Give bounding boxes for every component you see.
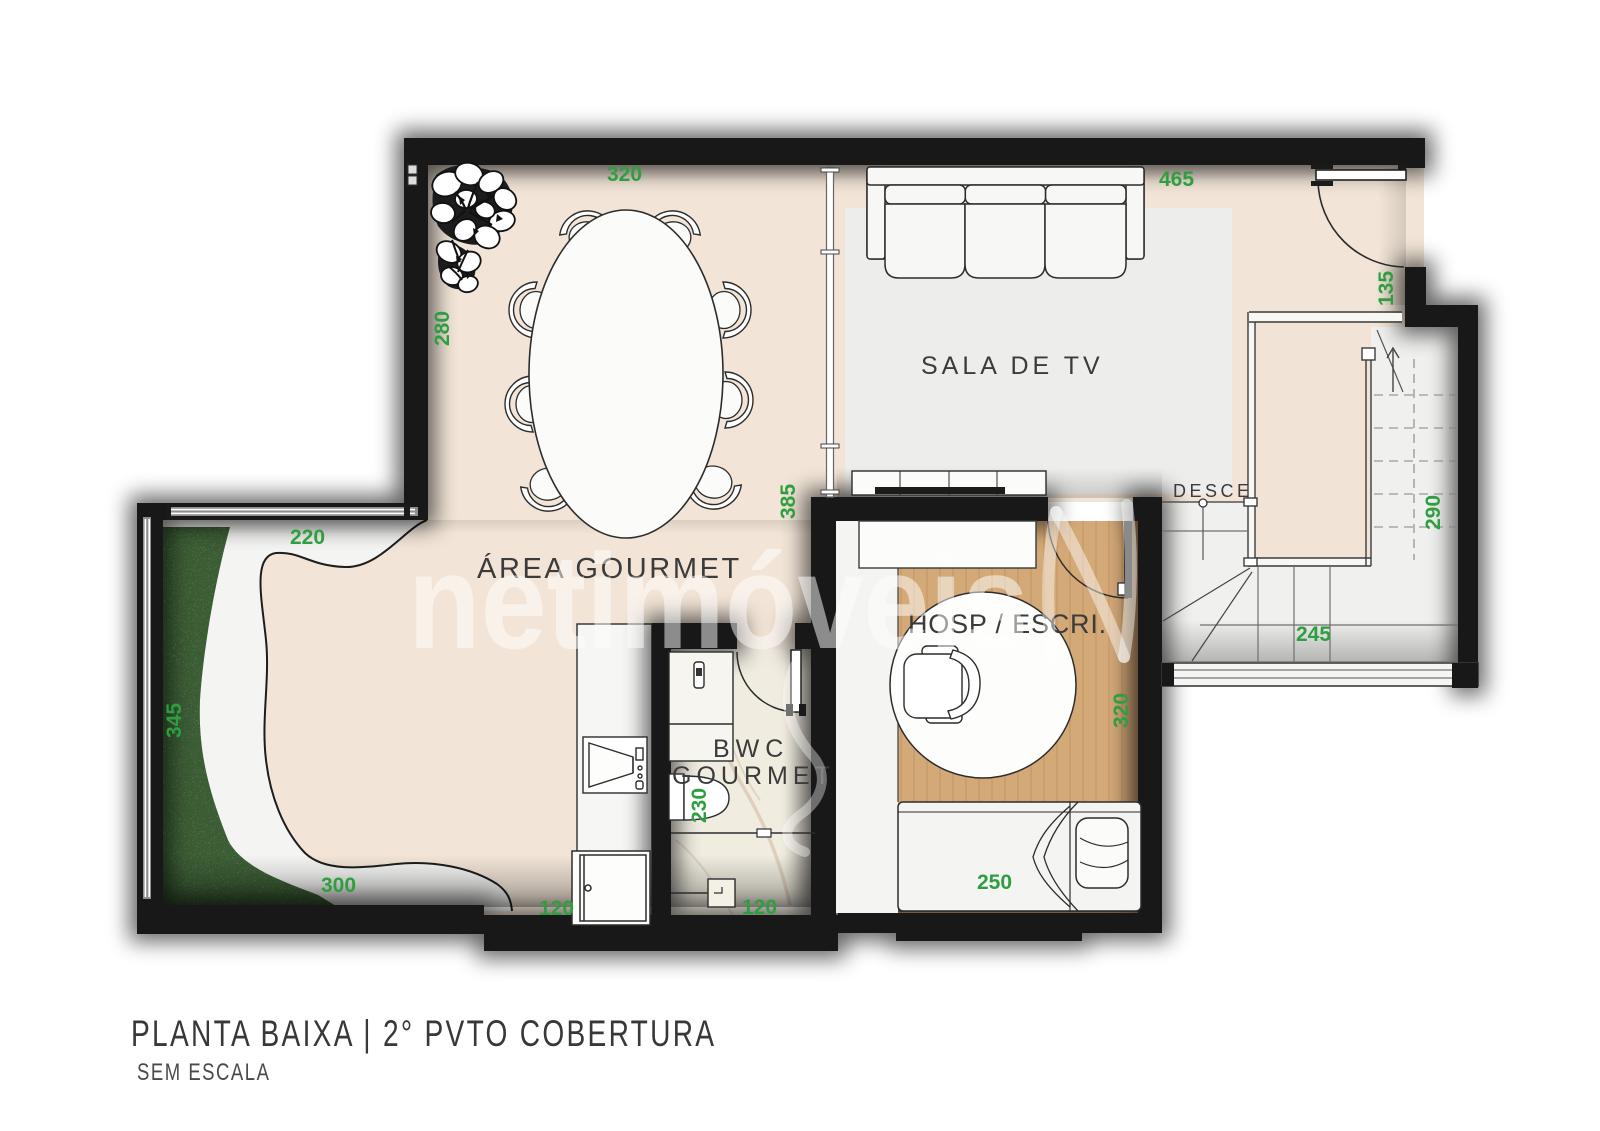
svg-text:PLANTA BAIXA | 2° PVTO COBERTU: PLANTA BAIXA | 2° PVTO COBERTURA [131,1012,716,1054]
svg-text:BWC: BWC [713,735,789,763]
svg-text:300: 300 [321,874,356,897]
svg-text:320: 320 [1110,693,1133,728]
svg-text:245: 245 [1296,623,1331,646]
svg-text:SALA DE TV: SALA DE TV [921,352,1104,380]
svg-text:385: 385 [777,484,800,519]
svg-text:280: 280 [431,311,454,346]
svg-text:320: 320 [607,163,642,186]
svg-text:465: 465 [1159,168,1194,191]
svg-text:230: 230 [688,788,711,823]
svg-text:120: 120 [742,896,777,919]
svg-text:345: 345 [163,703,186,738]
svg-text:netimóveis: netimóveis [408,526,1029,677]
svg-text:135: 135 [1375,271,1398,306]
svg-text:120: 120 [539,897,574,920]
svg-text:250: 250 [977,871,1012,894]
svg-text:DESCE: DESCE [1173,481,1253,501]
svg-text:SEM ESCALA: SEM ESCALA [137,1059,270,1086]
svg-text:290: 290 [1422,495,1445,530]
svg-text:GOURMET: GOURMET [672,762,835,790]
svg-text:220: 220 [290,526,325,549]
